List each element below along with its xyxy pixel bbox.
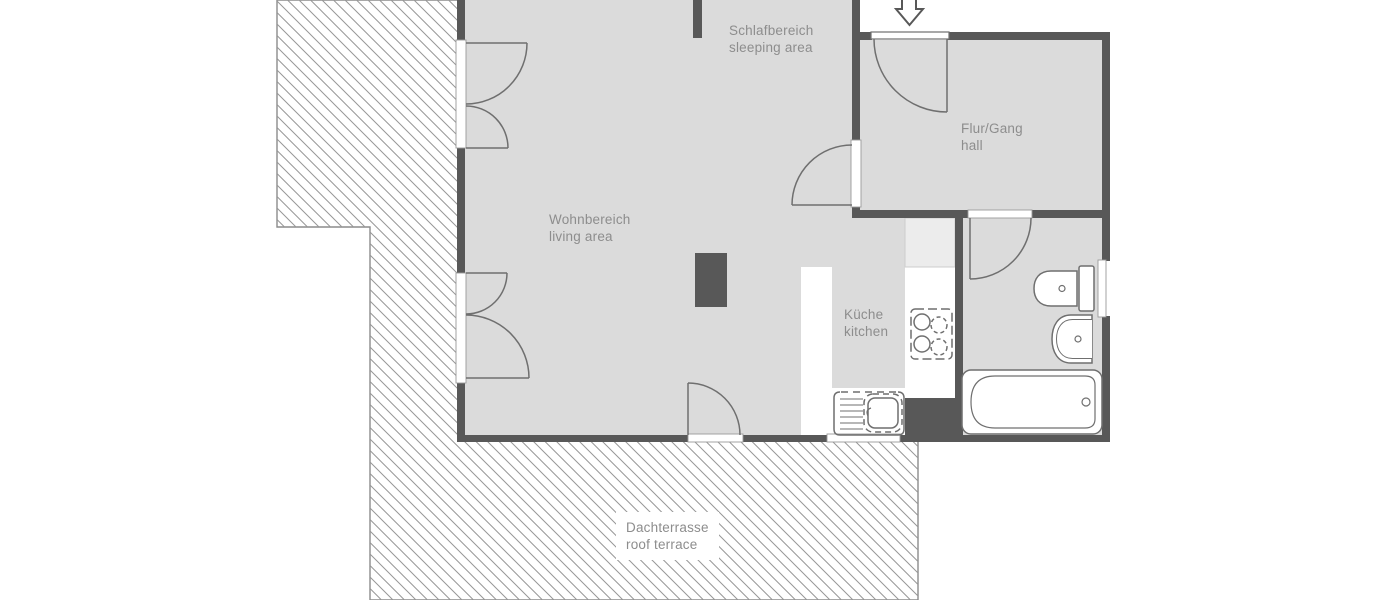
door-opening	[456, 273, 466, 383]
window	[1098, 260, 1106, 317]
room-label-terrace-en: roof terrace	[626, 536, 709, 553]
room-label-living: Wohnbereich living area	[549, 211, 631, 245]
room-label-hall-en: hall	[961, 137, 1023, 154]
wall	[852, 0, 860, 141]
room-label-sleeping-en: sleeping area	[729, 39, 813, 56]
wall-stub	[693, 0, 702, 38]
room-label-kitchen-de: Küche	[844, 306, 888, 323]
wall	[457, 0, 465, 40]
wall	[905, 398, 955, 435]
bathtub-inner	[971, 376, 1095, 428]
wall	[1102, 32, 1110, 261]
room-label-kitchen: Küche kitchen	[844, 306, 888, 340]
room-label-sleeping-de: Schlafbereich	[729, 22, 813, 39]
room-label-hall: Flur/Gang hall	[961, 120, 1023, 154]
kitchen-counter	[905, 267, 955, 398]
terrace-door-opening	[688, 434, 743, 442]
room-label-terrace-de: Dachterrasse	[626, 519, 709, 536]
wall	[1102, 316, 1110, 442]
entrance-arrow	[896, 0, 923, 25]
washbasin-drain	[1075, 336, 1081, 342]
wall	[899, 435, 1110, 442]
door-opening	[968, 210, 1032, 218]
floor-plan: Schlafbereich sleeping area Flur/Gang ha…	[0, 0, 1400, 600]
room-label-sleeping: Schlafbereich sleeping area	[729, 22, 813, 56]
bathtub-drain	[1082, 398, 1090, 406]
door-opening	[851, 140, 861, 207]
room-label-living-en: living area	[549, 228, 631, 245]
door-opening	[456, 40, 466, 148]
wall	[742, 435, 828, 442]
wall	[852, 32, 872, 40]
floor-plan-drawing	[0, 0, 1400, 600]
wall	[852, 210, 969, 218]
washbasin-inner	[1057, 320, 1093, 359]
chimney	[695, 253, 727, 307]
wall	[947, 32, 1110, 40]
wall	[457, 383, 465, 442]
wall	[1031, 210, 1110, 218]
wall	[457, 148, 465, 273]
entrance-door	[871, 32, 949, 39]
toilet-bowl	[1034, 271, 1077, 306]
room-label-kitchen-en: kitchen	[844, 323, 888, 340]
room-label-terrace: Dachterrasse roof terrace	[616, 512, 719, 560]
tall-unit	[905, 218, 955, 267]
toilet-drain	[1059, 286, 1065, 292]
wall	[457, 435, 689, 442]
room-label-hall-de: Flur/Gang	[961, 120, 1023, 137]
toilet-cistern	[1079, 266, 1094, 311]
room-label-living-de: Wohnbereich	[549, 211, 631, 228]
